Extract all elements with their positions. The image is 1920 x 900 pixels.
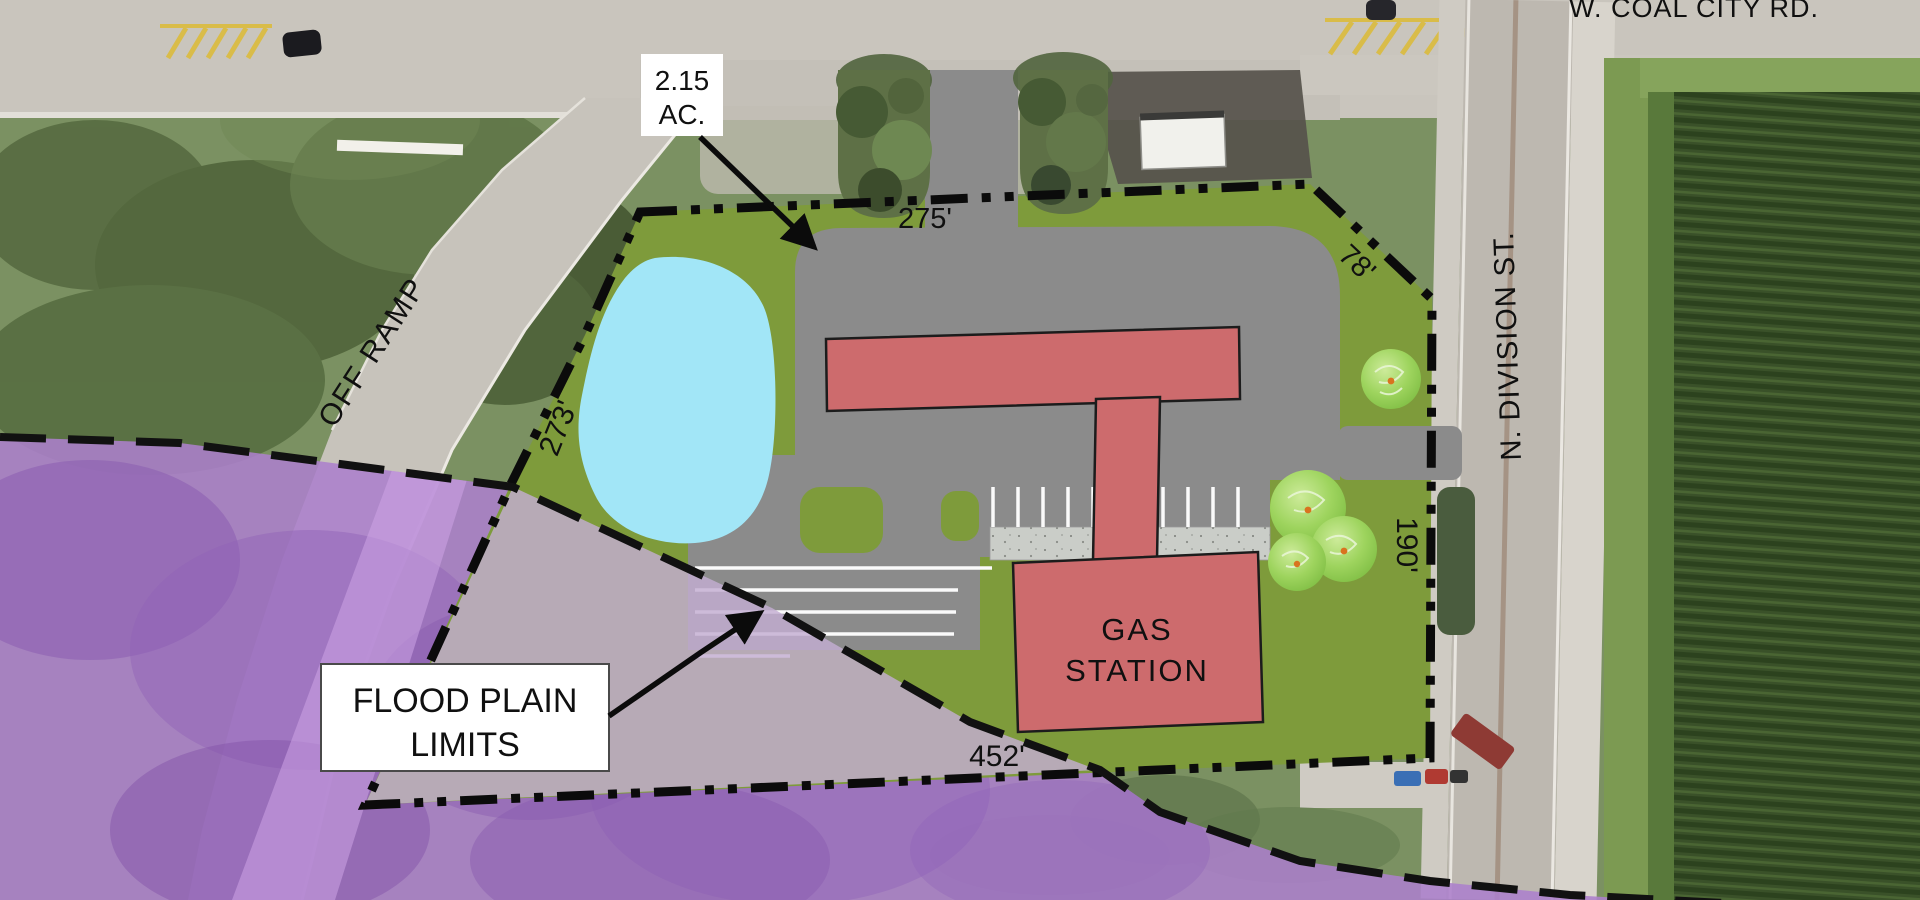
dim-east: 190' [1390,517,1423,573]
tree-icon [1361,349,1421,409]
gas-station-label-line1: GAS [1101,612,1172,647]
area-label-line2: AC. [659,99,706,130]
top-road-label: W. COAL CITY RD. [1569,0,1819,23]
car-icon [1394,771,1421,786]
trailer [1140,111,1226,170]
building-stem [1093,397,1160,561]
site-plan-svg: 2.15 AC. FLOOD PLAIN LIMITS GAS STATION … [0,0,1920,900]
gas-station-label-line2: STATION [1065,653,1209,688]
dim-south: 452' [969,740,1025,773]
shed [1437,487,1475,635]
car-icon [1450,770,1468,783]
site-plan-image: 2.15 AC. FLOOD PLAIN LIMITS GAS STATION … [0,0,1920,900]
dim-north: 275' [898,203,952,235]
flood-label-line1: FLOOD PLAIN [353,682,578,720]
car-icon [1366,0,1396,20]
flood-label-line2: LIMITS [410,726,520,764]
main-building [826,327,1240,411]
cornfield [1648,92,1920,900]
car-icon [282,29,322,58]
car-icon [1425,769,1448,784]
area-label-line1: 2.15 [655,65,710,96]
